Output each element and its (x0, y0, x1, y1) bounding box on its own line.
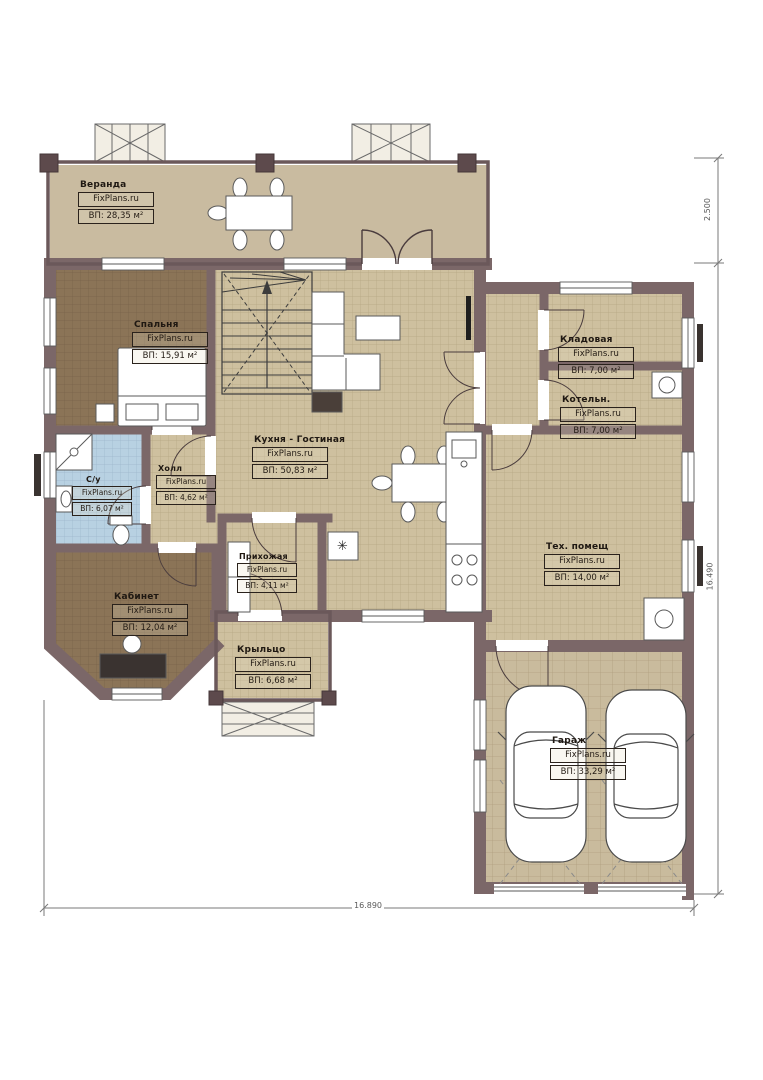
room-label-bathroom: С/у FixPlans.ru ВП: 6,07 м² (72, 475, 132, 516)
room-label-bedroom: Спальня FixPlans.ru ВП: 15,91 м² (132, 320, 208, 364)
room-name: Котельн. (562, 395, 636, 405)
floor-plan-svg (0, 0, 763, 1080)
brand-watermark: FixPlans.ru (78, 192, 154, 207)
room-label-kitchen-living: Кухня - Гостиная FixPlans.ru ВП: 50,83 м… (252, 435, 345, 479)
brand-watermark: FixPlans.ru (235, 657, 311, 672)
room-name: Гараж (552, 736, 626, 746)
room-label-storage: Кладовая FixPlans.ru ВП: 7,00 м² (558, 335, 634, 379)
room-area: ВП: 28,35 м² (78, 209, 154, 224)
dishwasher-symbol: ✳ (337, 539, 348, 554)
brand-watermark: FixPlans.ru (156, 475, 216, 489)
window (682, 452, 694, 502)
dimension-right-main: 16.490 (706, 561, 715, 593)
room-area: ВП: 33,29 м² (550, 765, 626, 780)
room-name: Кладовая (560, 335, 634, 345)
room-area: ВП: 12,04 м² (112, 621, 188, 636)
veranda-steps-left (95, 124, 165, 162)
room-name: Кабинет (114, 592, 188, 602)
brand-watermark: FixPlans.ru (132, 332, 208, 347)
sink (56, 486, 72, 512)
tech-equipment (644, 598, 684, 640)
window (682, 318, 694, 368)
window (44, 368, 56, 414)
room-label-porch: Крыльцо FixPlans.ru ВП: 6,68 м² (235, 645, 311, 689)
room-label-boiler-room: Котельн. FixPlans.ru ВП: 7,00 м² (560, 395, 636, 439)
window (102, 258, 164, 270)
room-area: ВП: 6,07 м² (72, 502, 132, 516)
room-name: Крыльцо (237, 645, 311, 655)
brand-watermark: FixPlans.ru (544, 554, 620, 569)
porch-steps (222, 702, 314, 736)
dimension-bottom: 16.890 (352, 901, 384, 910)
room-area: ВП: 4,62 м² (156, 491, 216, 505)
room-area: ВП: 7,00 м² (558, 364, 634, 379)
window (362, 610, 424, 622)
window (474, 760, 486, 812)
room-name: Кухня - Гостиная (254, 435, 345, 445)
brand-watermark: FixPlans.ru (252, 447, 328, 462)
window (44, 298, 56, 346)
tv (466, 296, 471, 340)
room-name: Прихожая (239, 552, 297, 561)
room-label-entry-hall: Прихожая FixPlans.ru ВП: 4,11 м² (237, 552, 297, 593)
boiler (652, 372, 682, 398)
brand-watermark: FixPlans.ru (550, 748, 626, 763)
window (560, 282, 632, 294)
shower (56, 434, 92, 470)
room-area: ВП: 50,83 м² (252, 464, 328, 479)
window (682, 540, 694, 592)
veranda-steps-right (352, 124, 430, 162)
room-label-hall: Холл FixPlans.ru ВП: 4,62 м² (156, 464, 216, 505)
brand-watermark: FixPlans.ru (237, 563, 297, 577)
room-name: Холл (158, 464, 216, 473)
room-label-office: Кабинет FixPlans.ru ВП: 12,04 м² (112, 592, 188, 636)
room-label-tech-room: Тех. помещ FixPlans.ru ВП: 14,00 м² (544, 542, 620, 586)
room-name: Тех. помещ (546, 542, 620, 552)
brand-watermark: FixPlans.ru (558, 347, 634, 362)
room-area: ВП: 7,00 м² (560, 424, 636, 439)
coffee-table (356, 316, 400, 340)
room-label-veranda: Веранда FixPlans.ru ВП: 28,35 м² (78, 180, 154, 224)
room-area: ВП: 4,11 м² (237, 579, 297, 593)
room-label-garage: Гараж FixPlans.ru ВП: 33,29 м² (550, 736, 626, 780)
room-area: ВП: 14,00 м² (544, 571, 620, 586)
room-name: Веранда (80, 180, 154, 190)
dimension-right-top: 2.500 (703, 196, 712, 223)
room-area: ВП: 6,68 м² (235, 674, 311, 689)
brand-watermark: FixPlans.ru (560, 407, 636, 422)
room-name: С/у (86, 475, 132, 484)
brand-watermark: FixPlans.ru (112, 604, 188, 619)
window (44, 452, 56, 498)
brand-watermark: FixPlans.ru (72, 486, 132, 500)
room-name: Спальня (134, 320, 208, 330)
room-area: ВП: 15,91 м² (132, 349, 208, 364)
window (284, 258, 346, 270)
window (112, 688, 162, 700)
floor-plan-page: Веранда FixPlans.ru ВП: 28,35 м² Спальня… (0, 0, 763, 1080)
window (474, 700, 486, 750)
